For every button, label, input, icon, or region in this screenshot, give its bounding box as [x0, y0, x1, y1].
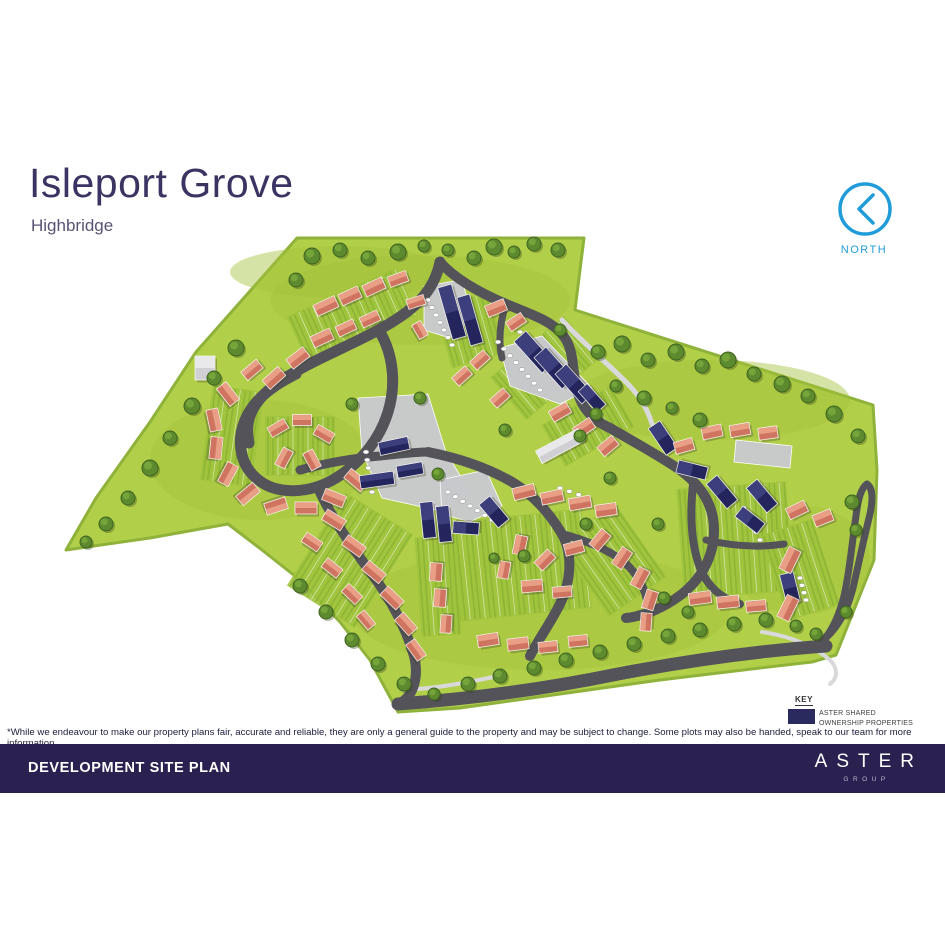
page-subtitle: Highbridge: [31, 216, 113, 236]
footer-bar: DEVELOPMENT SITE PLAN ASTER GROUP: [0, 744, 945, 793]
page-title: Isleport Grove: [29, 160, 294, 207]
brand-subtext: GROUP: [806, 776, 923, 783]
site-plan-page: Isleport Grove Highbridge NORTH KEY ASTE…: [0, 0, 945, 945]
key-legend: KEY ASTER SHARED OWNERSHIP PROPERTIES: [788, 689, 945, 729]
north-label: NORTH: [832, 244, 896, 256]
key-swatch-shared-ownership: [788, 709, 815, 724]
brand-logo: ASTER GROUP: [806, 751, 923, 783]
compass-icon: [834, 180, 894, 238]
site-plan-map: [0, 0, 945, 945]
brand-wordmark: ASTER: [806, 751, 923, 773]
footer-title: DEVELOPMENT SITE PLAN: [28, 744, 231, 793]
key-title: KEY: [795, 695, 813, 706]
key-label-line1: ASTER SHARED: [819, 709, 913, 719]
key-label: ASTER SHARED OWNERSHIP PROPERTIES: [819, 709, 913, 729]
north-indicator: NORTH: [832, 180, 896, 256]
